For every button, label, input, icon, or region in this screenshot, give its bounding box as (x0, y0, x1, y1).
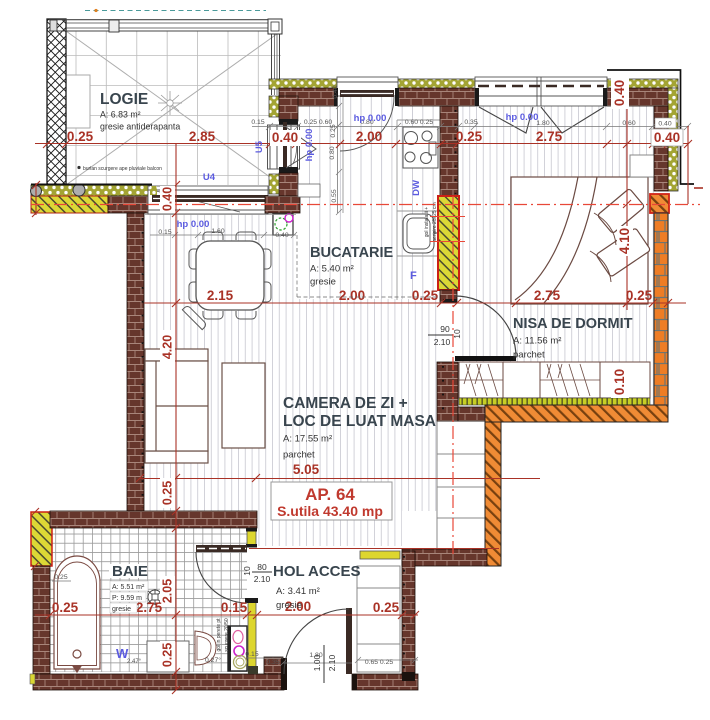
svg-text:2.10: 2.10 (434, 337, 451, 347)
svg-text:A: 5.40 m²: A: 5.40 m² (310, 264, 354, 275)
svg-text:S.utila 43.40 mp: S.utila 43.40 mp (277, 503, 383, 519)
svg-text:0.15: 0.15 (251, 119, 264, 126)
svg-text:P: 9.59 m: P: 9.59 m (112, 595, 142, 602)
svg-text:0.25: 0.25 (626, 288, 653, 303)
svg-text:1.60: 1.60 (211, 228, 224, 235)
svg-text:2.75: 2.75 (536, 129, 563, 144)
svg-text:W: W (116, 646, 129, 661)
svg-text:0.40: 0.40 (275, 232, 288, 239)
svg-text:gresie: gresie (310, 277, 336, 288)
svg-text:U5: U5 (254, 140, 265, 153)
svg-text:LOGIE: LOGIE (100, 91, 148, 108)
svg-text:0.65 0.25: 0.65 0.25 (365, 659, 394, 666)
svg-text:gresie: gresie (112, 606, 131, 613)
svg-text:2.10: 2.10 (327, 654, 337, 671)
svg-text:0.60: 0.60 (622, 120, 635, 127)
svg-text:parchet: parchet (283, 450, 315, 461)
svg-text:0.25: 0.25 (456, 129, 483, 144)
svg-text:0.40: 0.40 (654, 130, 680, 145)
svg-text:2.47°: 2.47° (127, 659, 142, 665)
svg-text:gol in perete pt: gol in perete pt (216, 618, 222, 652)
svg-text:LOC DE LUAT MASA: LOC DE LUAT MASA (283, 413, 436, 430)
svg-text:2.05: 2.05 (161, 579, 175, 603)
svg-text:0.25: 0.25 (330, 124, 337, 137)
svg-text:0.27°: 0.27° (205, 656, 221, 664)
svg-text:0.25 0.60: 0.25 0.60 (304, 119, 333, 126)
svg-text:0.15: 0.15 (245, 651, 258, 658)
svg-text:2.00: 2.00 (356, 129, 382, 144)
svg-text:hp 0.00: hp 0.00 (304, 129, 315, 162)
svg-text:F: F (410, 270, 417, 282)
svg-text:0.35: 0.35 (266, 659, 279, 666)
svg-text:A: 5.51 m²: A: 5.51 m² (112, 584, 145, 591)
svg-text:A: 3.41 m²: A: 3.41 m² (276, 586, 320, 597)
svg-text:80: 80 (257, 562, 267, 572)
svg-text:hp 0.00: hp 0.00 (177, 219, 210, 230)
svg-text:gresie antiderapanta: gresie antiderapanta (100, 122, 180, 132)
svg-text:2.10: 2.10 (254, 574, 271, 584)
svg-text:0.55: 0.55 (331, 189, 338, 202)
svg-text:BAIE: BAIE (112, 563, 148, 580)
svg-text:0.25: 0.25 (67, 129, 94, 144)
svg-text:2.85: 2.85 (189, 129, 216, 144)
svg-text:0.40: 0.40 (612, 80, 627, 106)
svg-text:0.10: 0.10 (612, 369, 627, 395)
svg-text:U4: U4 (203, 172, 216, 183)
svg-text:2.15: 2.15 (207, 288, 234, 303)
svg-text:0.25: 0.25 (54, 574, 67, 581)
svg-text:CAMERA DE ZI +: CAMERA DE ZI + (283, 395, 408, 412)
svg-text:5.05: 5.05 (293, 462, 320, 477)
svg-text:0.80: 0.80 (329, 146, 336, 159)
svg-text:2.75: 2.75 (534, 288, 561, 303)
svg-text:0.25: 0.25 (161, 643, 175, 667)
svg-text:90: 90 (440, 324, 450, 334)
svg-text:2.00: 2.00 (339, 288, 365, 303)
svg-text:0.15: 0.15 (158, 229, 171, 236)
svg-text:0.40: 0.40 (658, 121, 671, 128)
svg-text:0.25: 0.25 (52, 600, 79, 615)
svg-text:aerisire 25x25 cm: aerisire 25x25 cm (432, 202, 438, 241)
svg-text:1.00: 1.00 (312, 654, 322, 671)
svg-text:0.25: 0.25 (373, 600, 400, 615)
svg-text:0.40: 0.40 (161, 187, 175, 211)
svg-text:hp 0.00: hp 0.00 (354, 113, 387, 124)
svg-text:A: 11.56 m²: A: 11.56 m² (513, 336, 561, 347)
svg-text:0.35: 0.35 (464, 119, 477, 126)
svg-text:A: 17.55 m²: A: 17.55 m² (283, 434, 332, 445)
svg-text:hp 0.00: hp 0.00 (506, 112, 539, 123)
svg-text:AP. 64: AP. 64 (305, 485, 355, 504)
svg-text:burlan scurgere ape pluviale b: burlan scurgere ape pluviale balcon (83, 166, 162, 172)
svg-text:0.40: 0.40 (332, 85, 339, 98)
svg-text:parchet: parchet (513, 350, 545, 361)
svg-text:gol instalatii +: gol instalatii + (424, 207, 430, 238)
svg-text:scurgere 20/50: scurgere 20/50 (224, 618, 230, 652)
svg-text:0.25: 0.25 (161, 481, 175, 505)
svg-text:HOL ACCES: HOL ACCES (273, 563, 361, 580)
svg-text:4.10: 4.10 (617, 228, 632, 254)
svg-text:0.60 0.25: 0.60 0.25 (405, 119, 434, 126)
svg-text:A: 6.83 m²: A: 6.83 m² (100, 110, 141, 120)
svg-text:BUCATARIE: BUCATARIE (310, 245, 394, 261)
svg-text:NISA DE DORMIT: NISA DE DORMIT (513, 316, 633, 332)
svg-text:0.15: 0.15 (221, 600, 248, 615)
svg-text:DW: DW (411, 180, 422, 196)
svg-text:4.20: 4.20 (161, 335, 175, 359)
svg-text:gresie: gresie (276, 600, 302, 611)
svg-text:0.25: 0.25 (412, 288, 439, 303)
svg-text:0.40: 0.40 (272, 130, 298, 145)
svg-text:10: 10 (242, 566, 252, 576)
svg-text:1.80: 1.80 (536, 120, 549, 127)
